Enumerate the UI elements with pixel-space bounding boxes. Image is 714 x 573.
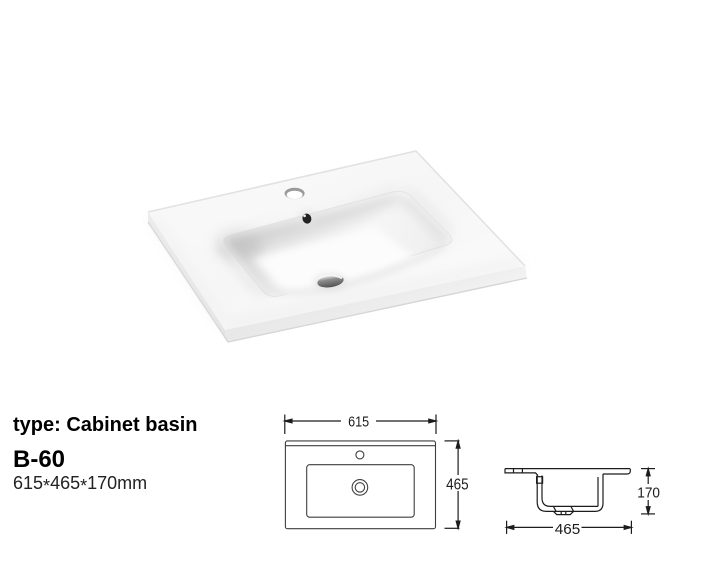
svg-text:170: 170 [637, 486, 660, 502]
svg-text:615: 615 [348, 414, 369, 430]
svg-text:465: 465 [555, 521, 581, 538]
svg-text:465: 465 [446, 476, 469, 493]
